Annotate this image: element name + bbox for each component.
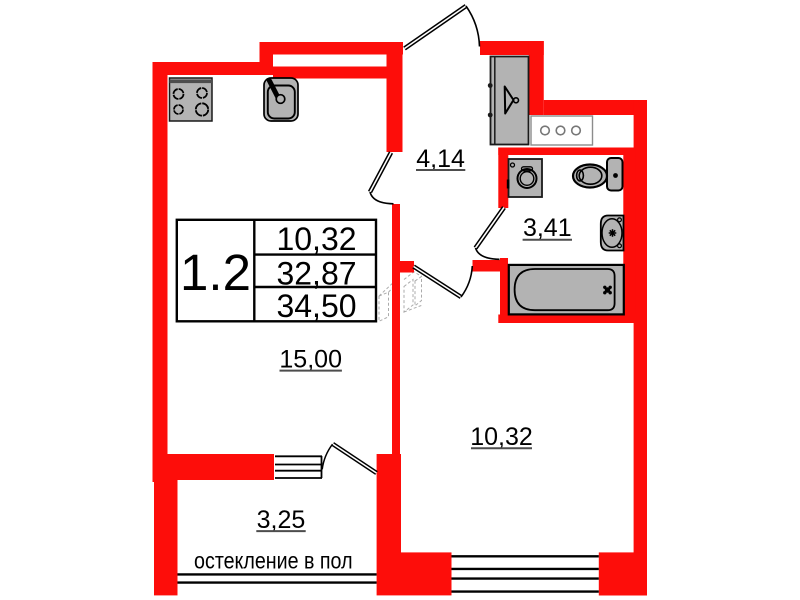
svg-text:15,00: 15,00 [279,346,342,374]
svg-text:3,41: 3,41 [523,214,572,242]
svg-text:10,32: 10,32 [470,423,533,451]
svg-text:10,32: 10,32 [276,221,356,257]
svg-text:1.2: 1.2 [180,244,251,301]
svg-text:32,87: 32,87 [276,255,356,291]
svg-text:34,50: 34,50 [276,288,356,324]
svg-text:остекление в пол: остекление в пол [194,548,353,574]
svg-text:4,14: 4,14 [416,145,465,173]
svg-text:3,25: 3,25 [257,506,306,534]
